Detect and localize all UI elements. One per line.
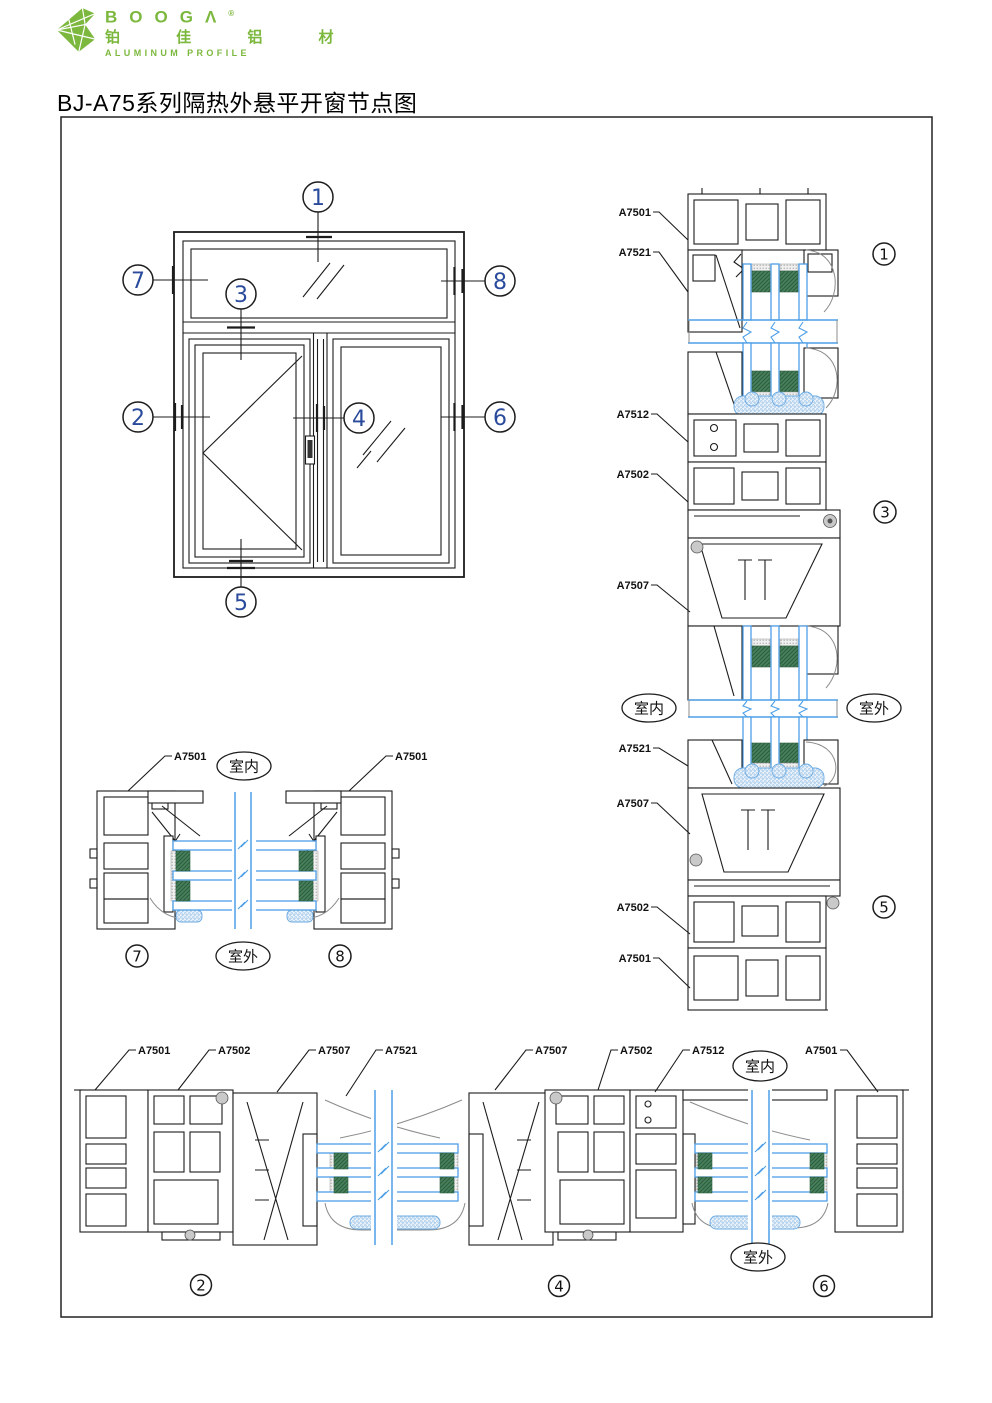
jamb-label-right: A7501: [395, 751, 427, 763]
outdoor-oval-right: 室外: [847, 694, 901, 722]
plan-label-a7507-2: A7507: [535, 1045, 567, 1057]
plan-glazing-2: [683, 1086, 828, 1250]
node-detail-drawing: 1 7 8 3 2 4 6 5: [0, 0, 992, 1403]
callout-8: 8: [485, 266, 515, 296]
plan-frame-left: [74, 1090, 148, 1232]
profile-head-frame: [688, 188, 826, 250]
callout-5: 5: [226, 587, 256, 617]
svg-text:4: 4: [554, 1278, 564, 1296]
svg-text:5: 5: [879, 899, 889, 917]
indoor-oval-plan: 室内: [733, 1051, 787, 1081]
glass-hatch-marks: [303, 263, 405, 468]
label-a7507-2: A7507: [617, 798, 649, 810]
profile-a7502-transom: [688, 462, 840, 538]
plan-mullion-right: [545, 1090, 630, 1240]
label-a7501-2: A7501: [619, 953, 651, 965]
label-a7521-2: A7521: [619, 743, 651, 755]
callout-1: 1: [303, 182, 333, 212]
outdoor-oval-jamb: 室外: [216, 942, 270, 970]
detail-bubble-5: 5: [873, 896, 895, 918]
indoor-oval-jamb: 室内: [217, 752, 271, 780]
glazing-detail-1: [743, 264, 807, 320]
casement-open-symbol: [203, 356, 302, 550]
svg-text:1: 1: [311, 186, 325, 211]
svg-text:8: 8: [493, 270, 507, 295]
detail-bubble-2: 2: [191, 1275, 212, 1296]
label-a7502: A7502: [617, 469, 649, 481]
jamb-section: A7501 A7501 室内 室外 7 8: [90, 751, 427, 970]
label-a7502-2: A7502: [617, 902, 649, 914]
detail-bubble-7: 7: [126, 945, 148, 967]
break-line-2: [688, 700, 838, 717]
svg-text:室外: 室外: [743, 1250, 773, 1267]
elevation-callouts: 1 7 8 3 2 4 6 5: [123, 182, 515, 617]
plan-label-a7512: A7512: [692, 1045, 724, 1057]
label-a7501: A7501: [619, 207, 651, 219]
detail-bubble-4: 4: [549, 1276, 570, 1297]
profile-a7512: [688, 414, 826, 462]
plan-section: A7501 A7502 A7507 A7521 A7507 A7502 A751…: [74, 1045, 909, 1297]
detail-bubble-8: 8: [329, 945, 351, 967]
svg-text:6: 6: [819, 1278, 829, 1296]
profile-a7507-frame: [688, 788, 840, 896]
svg-text:4: 4: [352, 407, 366, 432]
callout-3: 3: [226, 279, 256, 309]
detail-bubble-1: 1: [873, 243, 895, 265]
plan-label-a7507: A7507: [318, 1045, 350, 1057]
plan-frame-right: [835, 1090, 909, 1232]
label-a7507: A7507: [617, 580, 649, 592]
vertical-section: A7501 A7521 A7512 A7502 A7507 A7521 A750…: [617, 188, 901, 1010]
window-handle: [306, 436, 315, 464]
svg-text:8: 8: [335, 948, 345, 966]
indoor-oval-right: 室内: [622, 694, 676, 722]
profile-a7502-sill: [688, 896, 839, 948]
callout-4: 4: [344, 403, 374, 433]
plan-label-a7501-2: A7501: [805, 1045, 837, 1057]
plan-label-a7521: A7521: [385, 1045, 417, 1057]
svg-text:室外: 室外: [228, 949, 258, 966]
window-elevation: 1 7 8 3 2 4 6 5: [123, 182, 515, 617]
svg-text:2: 2: [196, 1277, 206, 1295]
svg-text:室外: 室外: [859, 701, 889, 718]
vertical-section-labels: A7501 A7521 A7512 A7502 A7507 A7521 A750…: [617, 207, 690, 988]
label-a7512: A7512: [617, 409, 649, 421]
svg-text:室内: 室内: [634, 701, 664, 718]
callout-7: 7: [123, 265, 153, 295]
svg-text:2: 2: [131, 406, 145, 431]
plan-sash-left: [233, 1093, 317, 1245]
svg-text:1: 1: [879, 246, 889, 264]
profile-a7507-sash: [688, 538, 840, 626]
svg-text:7: 7: [131, 269, 145, 294]
plan-label-a7502-2: A7502: [620, 1045, 652, 1057]
detail-bubble-6: 6: [814, 1276, 835, 1297]
svg-text:7: 7: [132, 948, 142, 966]
svg-text:3: 3: [880, 504, 890, 522]
plan-label-a7502: A7502: [218, 1045, 250, 1057]
profile-sill-frame: [688, 948, 828, 1010]
svg-text:室内: 室内: [229, 759, 259, 776]
plan-glazing-1: [317, 1086, 465, 1250]
plan-sash-right: [469, 1093, 553, 1245]
svg-text:室内: 室内: [745, 1059, 775, 1076]
detail-bubble-3: 3: [874, 501, 896, 523]
plan-a7512: [630, 1090, 683, 1232]
callout-2: 2: [123, 402, 153, 432]
glazing-detail-1-lower: [688, 343, 838, 416]
svg-text:6: 6: [493, 406, 507, 431]
outdoor-oval-plan: 室外: [731, 1243, 785, 1271]
svg-text:3: 3: [234, 283, 248, 308]
jamb-label-left: A7501: [174, 751, 206, 763]
glazing-detail-5: [688, 717, 838, 788]
callout-6: 6: [485, 402, 515, 432]
plan-label-a7501: A7501: [138, 1045, 170, 1057]
glazing-detail-3: [688, 626, 838, 700]
label-a7521: A7521: [619, 247, 651, 259]
plan-mullion-left: [148, 1090, 233, 1240]
svg-text:5: 5: [234, 591, 248, 616]
